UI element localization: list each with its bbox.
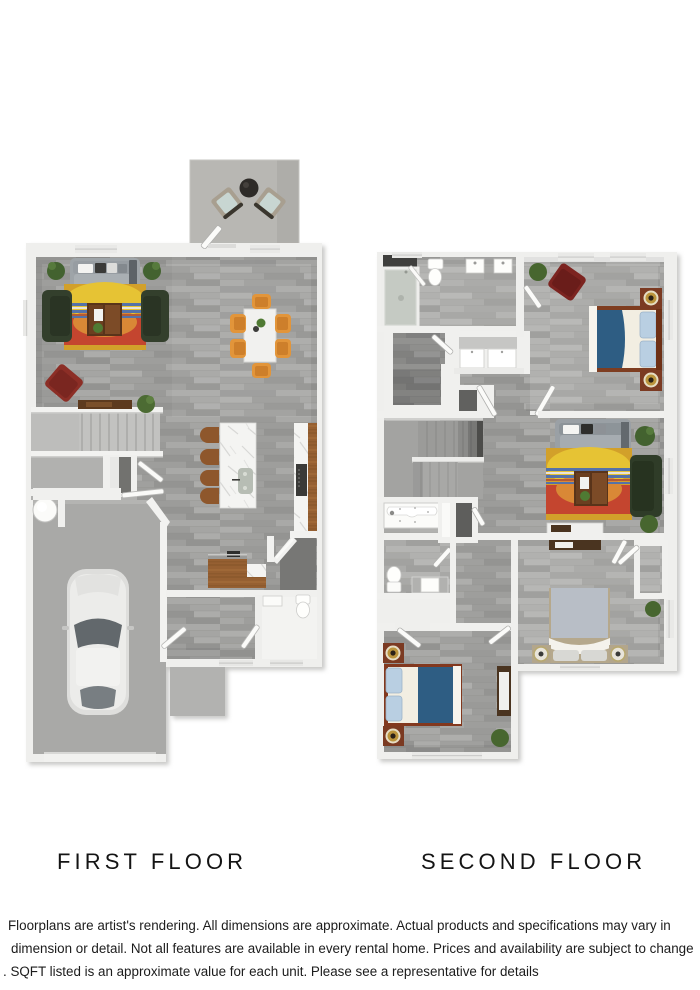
svg-text:SECOND FLOOR: SECOND FLOOR [421,849,646,874]
svg-text:. SQFT listed is an approximat: . SQFT listed is an approximate value fo… [3,964,539,979]
svg-text:FIRST FLOOR: FIRST FLOOR [57,849,247,874]
svg-text:Floorplans are artist's render: Floorplans are artist's rendering. All d… [8,918,671,933]
svg-text:dimension or detail. Not all f: dimension or detail. Not all features ar… [11,941,694,956]
